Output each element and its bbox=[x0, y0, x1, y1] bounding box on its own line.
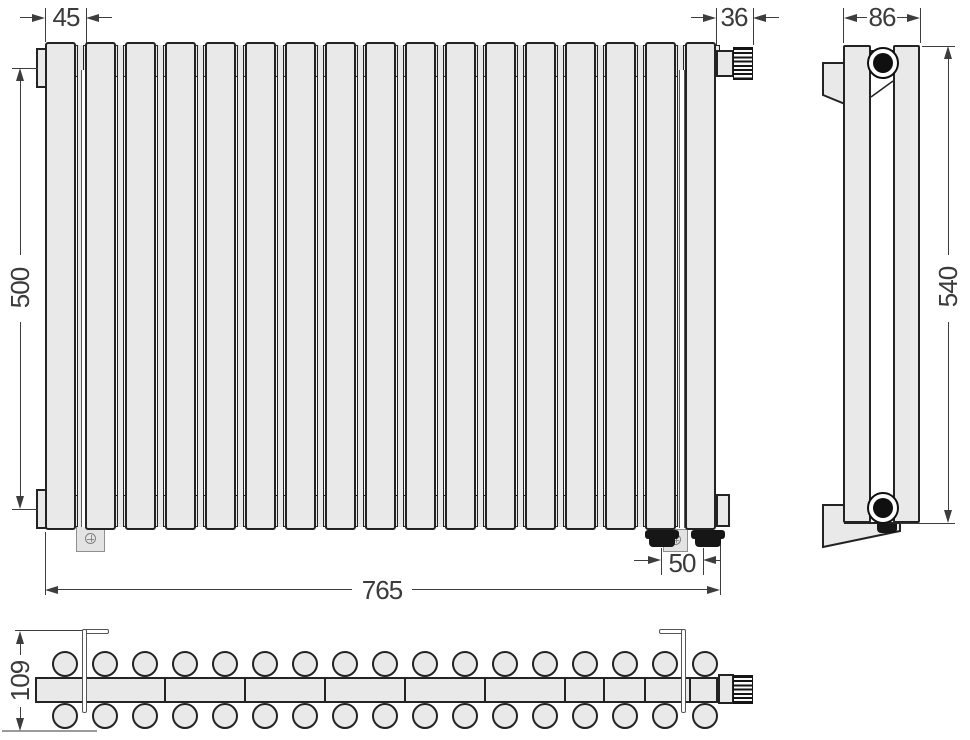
plan-tube-circle bbox=[332, 703, 358, 729]
dim-45-arrow bbox=[86, 14, 99, 22]
technical-drawing-canvas: 45 36 500 765 50 bbox=[0, 0, 970, 740]
dim-540-line bbox=[948, 59, 949, 255]
screw-icon bbox=[85, 533, 96, 544]
radiator-tube bbox=[245, 42, 276, 530]
dim-50-line bbox=[716, 560, 721, 561]
side-bottom-cap bbox=[877, 524, 897, 533]
back-tube bbox=[517, 45, 524, 527]
plan-tube-circle bbox=[332, 651, 358, 677]
back-tube bbox=[437, 45, 444, 527]
back-tube bbox=[397, 45, 404, 527]
plan-collector-bar bbox=[35, 677, 718, 703]
plan-collector-joint-line bbox=[164, 679, 166, 701]
radiator-tube bbox=[165, 42, 196, 530]
dim-500-line bbox=[20, 322, 21, 497]
back-tube bbox=[637, 45, 644, 527]
dim-label-valve-width: 36 bbox=[714, 3, 754, 31]
dim-label-depth: 86 bbox=[863, 3, 901, 31]
dim-50-arrow bbox=[648, 556, 661, 564]
dim-45-ext-left bbox=[45, 8, 46, 42]
plan-tube-circle bbox=[452, 651, 478, 677]
radiator-tube bbox=[605, 42, 636, 530]
bottom-outlet-cap-flange-right bbox=[691, 530, 725, 539]
dim-765-line bbox=[412, 589, 708, 590]
plan-bracket-hook-left bbox=[82, 629, 87, 713]
dim-109-arrow bbox=[16, 718, 24, 731]
dim-86-arrow bbox=[844, 14, 857, 22]
plan-tube-circle bbox=[132, 703, 158, 729]
dim-540-line bbox=[948, 322, 949, 511]
radiator-tube bbox=[365, 42, 396, 530]
side-front-tube-column bbox=[843, 45, 871, 523]
plan-tube-circle bbox=[92, 703, 118, 729]
plan-tube-circle bbox=[652, 651, 678, 677]
dim-label-outlet-spacing: 50 bbox=[663, 549, 701, 577]
dim-label-connection-height: 500 bbox=[6, 260, 34, 316]
radiator-tube bbox=[565, 42, 596, 530]
radiator-tube bbox=[125, 42, 156, 530]
dim-36-line bbox=[766, 17, 779, 18]
radiator-tube bbox=[405, 42, 436, 530]
top-pipe-bore bbox=[873, 53, 893, 73]
plan-collector-joint-line bbox=[689, 679, 691, 701]
plan-collector-joint-line bbox=[244, 679, 246, 701]
plan-tube-circle bbox=[612, 703, 638, 729]
dim-86-ext-right bbox=[920, 8, 921, 43]
bottom-outlet-cap-flange-left bbox=[645, 530, 679, 539]
dim-50-ext-left bbox=[661, 548, 662, 575]
dim-label-mounting-depth: 109 bbox=[6, 653, 34, 709]
plan-bracket-hook-right bbox=[681, 629, 686, 713]
plan-collector-joint-line bbox=[324, 679, 326, 701]
plan-tube-circle bbox=[52, 703, 78, 729]
plan-tube-circle bbox=[212, 651, 238, 677]
plan-valve-knurled-cap bbox=[733, 675, 753, 704]
dim-50-arrow bbox=[703, 556, 716, 564]
radiator-tube bbox=[485, 42, 516, 530]
dim-500-arrow bbox=[16, 68, 24, 81]
dim-540-arrow bbox=[944, 46, 952, 59]
back-tube bbox=[477, 45, 484, 527]
plan-tube-circle bbox=[572, 651, 598, 677]
dim-109-arrow bbox=[16, 631, 24, 644]
plan-tube-circle bbox=[572, 703, 598, 729]
dim-label-length: 765 bbox=[352, 576, 412, 604]
plan-tube-circle bbox=[492, 703, 518, 729]
side-back-tube-column bbox=[893, 45, 920, 523]
back-tube bbox=[277, 45, 284, 527]
side-collector-section-line bbox=[869, 76, 895, 100]
plan-tube-circle bbox=[372, 703, 398, 729]
back-tube bbox=[117, 45, 124, 527]
plan-tube-circle bbox=[532, 703, 558, 729]
plan-tube-circle bbox=[132, 651, 158, 677]
dim-50-line bbox=[634, 560, 648, 561]
plan-tube-circle bbox=[172, 703, 198, 729]
dim-765-line bbox=[57, 589, 352, 590]
radiator-tube bbox=[85, 42, 116, 530]
plan-collector-joint-line bbox=[484, 679, 486, 701]
radiator-tube bbox=[325, 42, 356, 530]
dim-540-ext-bottom bbox=[900, 523, 955, 524]
dim-500-ext-bottom bbox=[12, 509, 38, 510]
dim-label-overall-height: 540 bbox=[934, 259, 962, 315]
plan-tube-circle bbox=[692, 651, 718, 677]
plan-tube-circle bbox=[52, 651, 78, 677]
plan-tube-circle bbox=[412, 651, 438, 677]
plan-valve-collar bbox=[718, 674, 734, 704]
bottom-right-connection-stub bbox=[716, 494, 730, 527]
radiator-tube bbox=[685, 42, 716, 530]
dim-540-arrow bbox=[944, 510, 952, 523]
back-tube bbox=[157, 45, 164, 527]
radiator-tube bbox=[445, 42, 476, 530]
plan-tube-circle bbox=[292, 703, 318, 729]
dim-label-section-pitch: 45 bbox=[50, 3, 82, 31]
radiator-tube bbox=[525, 42, 556, 530]
plan-tube-circle bbox=[692, 703, 718, 729]
plan-tube-circle bbox=[452, 703, 478, 729]
back-tube bbox=[597, 45, 604, 527]
bottom-outlet-cap-right bbox=[695, 539, 721, 547]
plan-tube-circle bbox=[292, 651, 318, 677]
plan-tube-circle bbox=[532, 651, 558, 677]
plan-tube-circle bbox=[612, 651, 638, 677]
back-tube bbox=[357, 45, 364, 527]
dim-500-line bbox=[20, 81, 21, 255]
dim-36-arrow bbox=[753, 14, 766, 22]
dim-500-arrow bbox=[16, 496, 24, 509]
back-tube bbox=[557, 45, 564, 527]
plan-tube-circle bbox=[172, 651, 198, 677]
plan-collector-joint-line bbox=[404, 679, 406, 701]
dim-86-arrow bbox=[907, 14, 920, 22]
plan-collector-joint-line bbox=[644, 679, 646, 701]
bottom-pipe-bore bbox=[873, 498, 893, 518]
radiator-tube bbox=[645, 42, 676, 530]
plan-tube-circle bbox=[652, 703, 678, 729]
plan-tube-circle bbox=[372, 651, 398, 677]
plan-tube-circle bbox=[252, 703, 278, 729]
plan-collector-joint-line bbox=[603, 679, 605, 701]
radiator-tube bbox=[205, 42, 236, 530]
air-vent-valve-knurled-cap bbox=[733, 47, 753, 80]
plan-tube-circle bbox=[92, 651, 118, 677]
back-tube bbox=[317, 45, 324, 527]
dim-45-line bbox=[99, 17, 112, 18]
plan-tube-circle bbox=[412, 703, 438, 729]
back-tube bbox=[197, 45, 204, 527]
back-tube bbox=[237, 45, 244, 527]
plan-collector-joint-line bbox=[564, 679, 566, 701]
plan-tube-circle bbox=[252, 651, 278, 677]
valve-collar bbox=[716, 50, 734, 77]
plan-tube-circle bbox=[492, 651, 518, 677]
radiator-tube bbox=[285, 42, 316, 530]
bottom-outlet-cap-left bbox=[649, 539, 675, 547]
plan-tube-circle bbox=[212, 703, 238, 729]
radiator-tube bbox=[45, 42, 76, 530]
dim-765-arrow bbox=[707, 586, 720, 594]
dim-45-arrow bbox=[32, 14, 45, 22]
